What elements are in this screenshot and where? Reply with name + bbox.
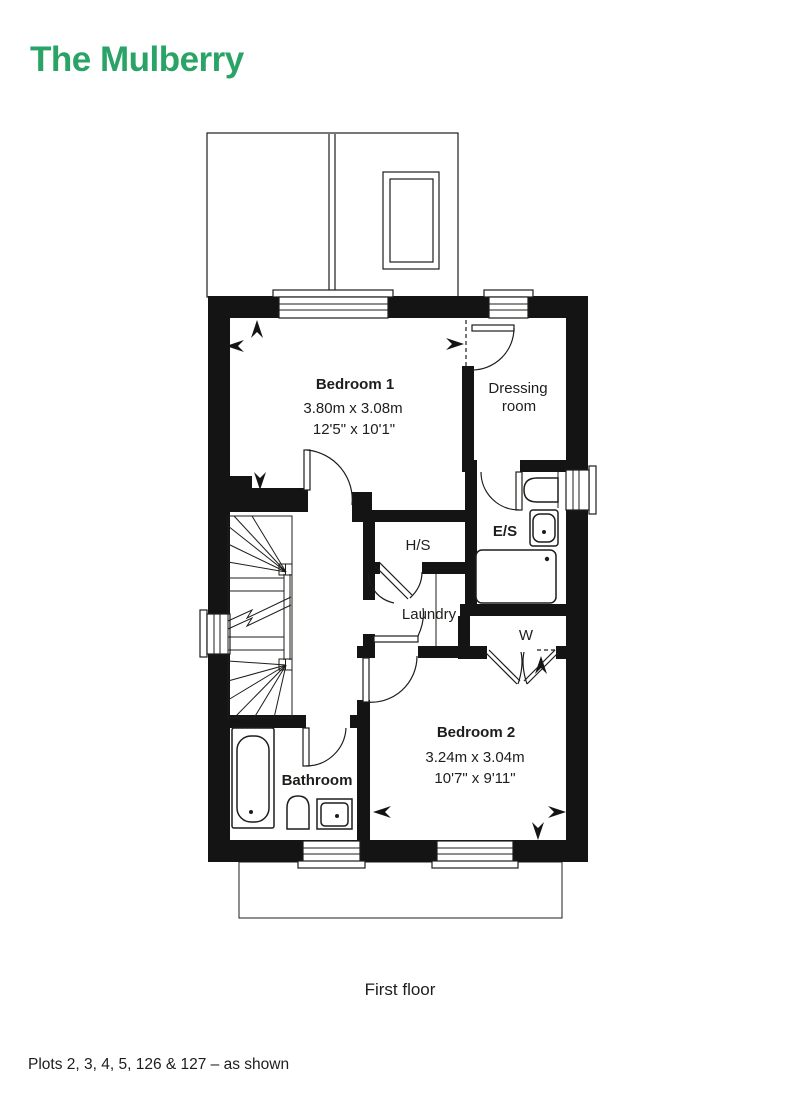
window-dressing: [484, 290, 533, 318]
floor-caption: First floor: [0, 980, 800, 1000]
laundry-label: Laundry: [402, 606, 457, 623]
wardrobe-label: W: [519, 627, 534, 644]
toilet-symbol-bathroom: [287, 796, 309, 829]
plots-note: Plots 2, 3, 4, 5, 126 & 127 – as shown: [28, 1056, 289, 1074]
hs-label: H/S: [405, 537, 430, 554]
bedroom2-size-metric: 3.24m x 3.04m: [425, 749, 524, 766]
bedroom2-label: Bedroom 2: [437, 724, 515, 741]
door-dressing: [466, 320, 514, 370]
bathroom-label: Bathroom: [282, 772, 353, 789]
dimension-arrow-right: [446, 338, 464, 350]
bedroom1-size-metric: 3.80m x 3.08m: [303, 400, 402, 417]
window-bathroom: [298, 841, 365, 868]
dimension-arrow-down: [532, 822, 544, 840]
bathtub-symbol: [232, 728, 274, 828]
door-bedroom1: [304, 450, 352, 505]
floor-plan: Bedroom 1 3.80m x 3.08m 12'5" x 10'1" Dr…: [0, 0, 800, 1100]
basin-symbol-ensuite: [530, 510, 558, 546]
window-bedroom1: [273, 290, 393, 318]
dressing-room-label-line2: room: [502, 398, 536, 415]
dimension-arrow-right: [548, 806, 566, 818]
dimension-arrow-up: [251, 320, 263, 338]
window-ensuite: [566, 466, 596, 514]
window-stairs: [200, 610, 230, 657]
wardrobe-doors: [486, 650, 558, 684]
shower-tray-symbol: [476, 550, 556, 603]
roof-outline: [207, 133, 458, 297]
ensuite-label: E/S: [493, 523, 517, 540]
bedroom1-label: Bedroom 1: [316, 376, 394, 393]
basin-symbol-bathroom: [317, 799, 352, 829]
bedroom2-size-imperial: 10'7" x 9'11": [434, 770, 515, 787]
staircase: [228, 516, 292, 718]
dressing-room-label-line1: Dressing: [488, 380, 547, 397]
rooflight: [383, 172, 439, 269]
window-bedroom2: [432, 841, 518, 868]
toilet-symbol-ensuite: [524, 472, 558, 508]
door-bedroom2: [363, 656, 417, 702]
bedroom1-size-imperial: 12'5" x 10'1": [313, 421, 395, 438]
door-ensuite: [481, 472, 522, 510]
dimension-arrow-left: [373, 806, 391, 818]
ground-outline: [239, 862, 562, 918]
dimension-arrow-down: [254, 472, 266, 490]
door-bathroom: [303, 728, 346, 766]
